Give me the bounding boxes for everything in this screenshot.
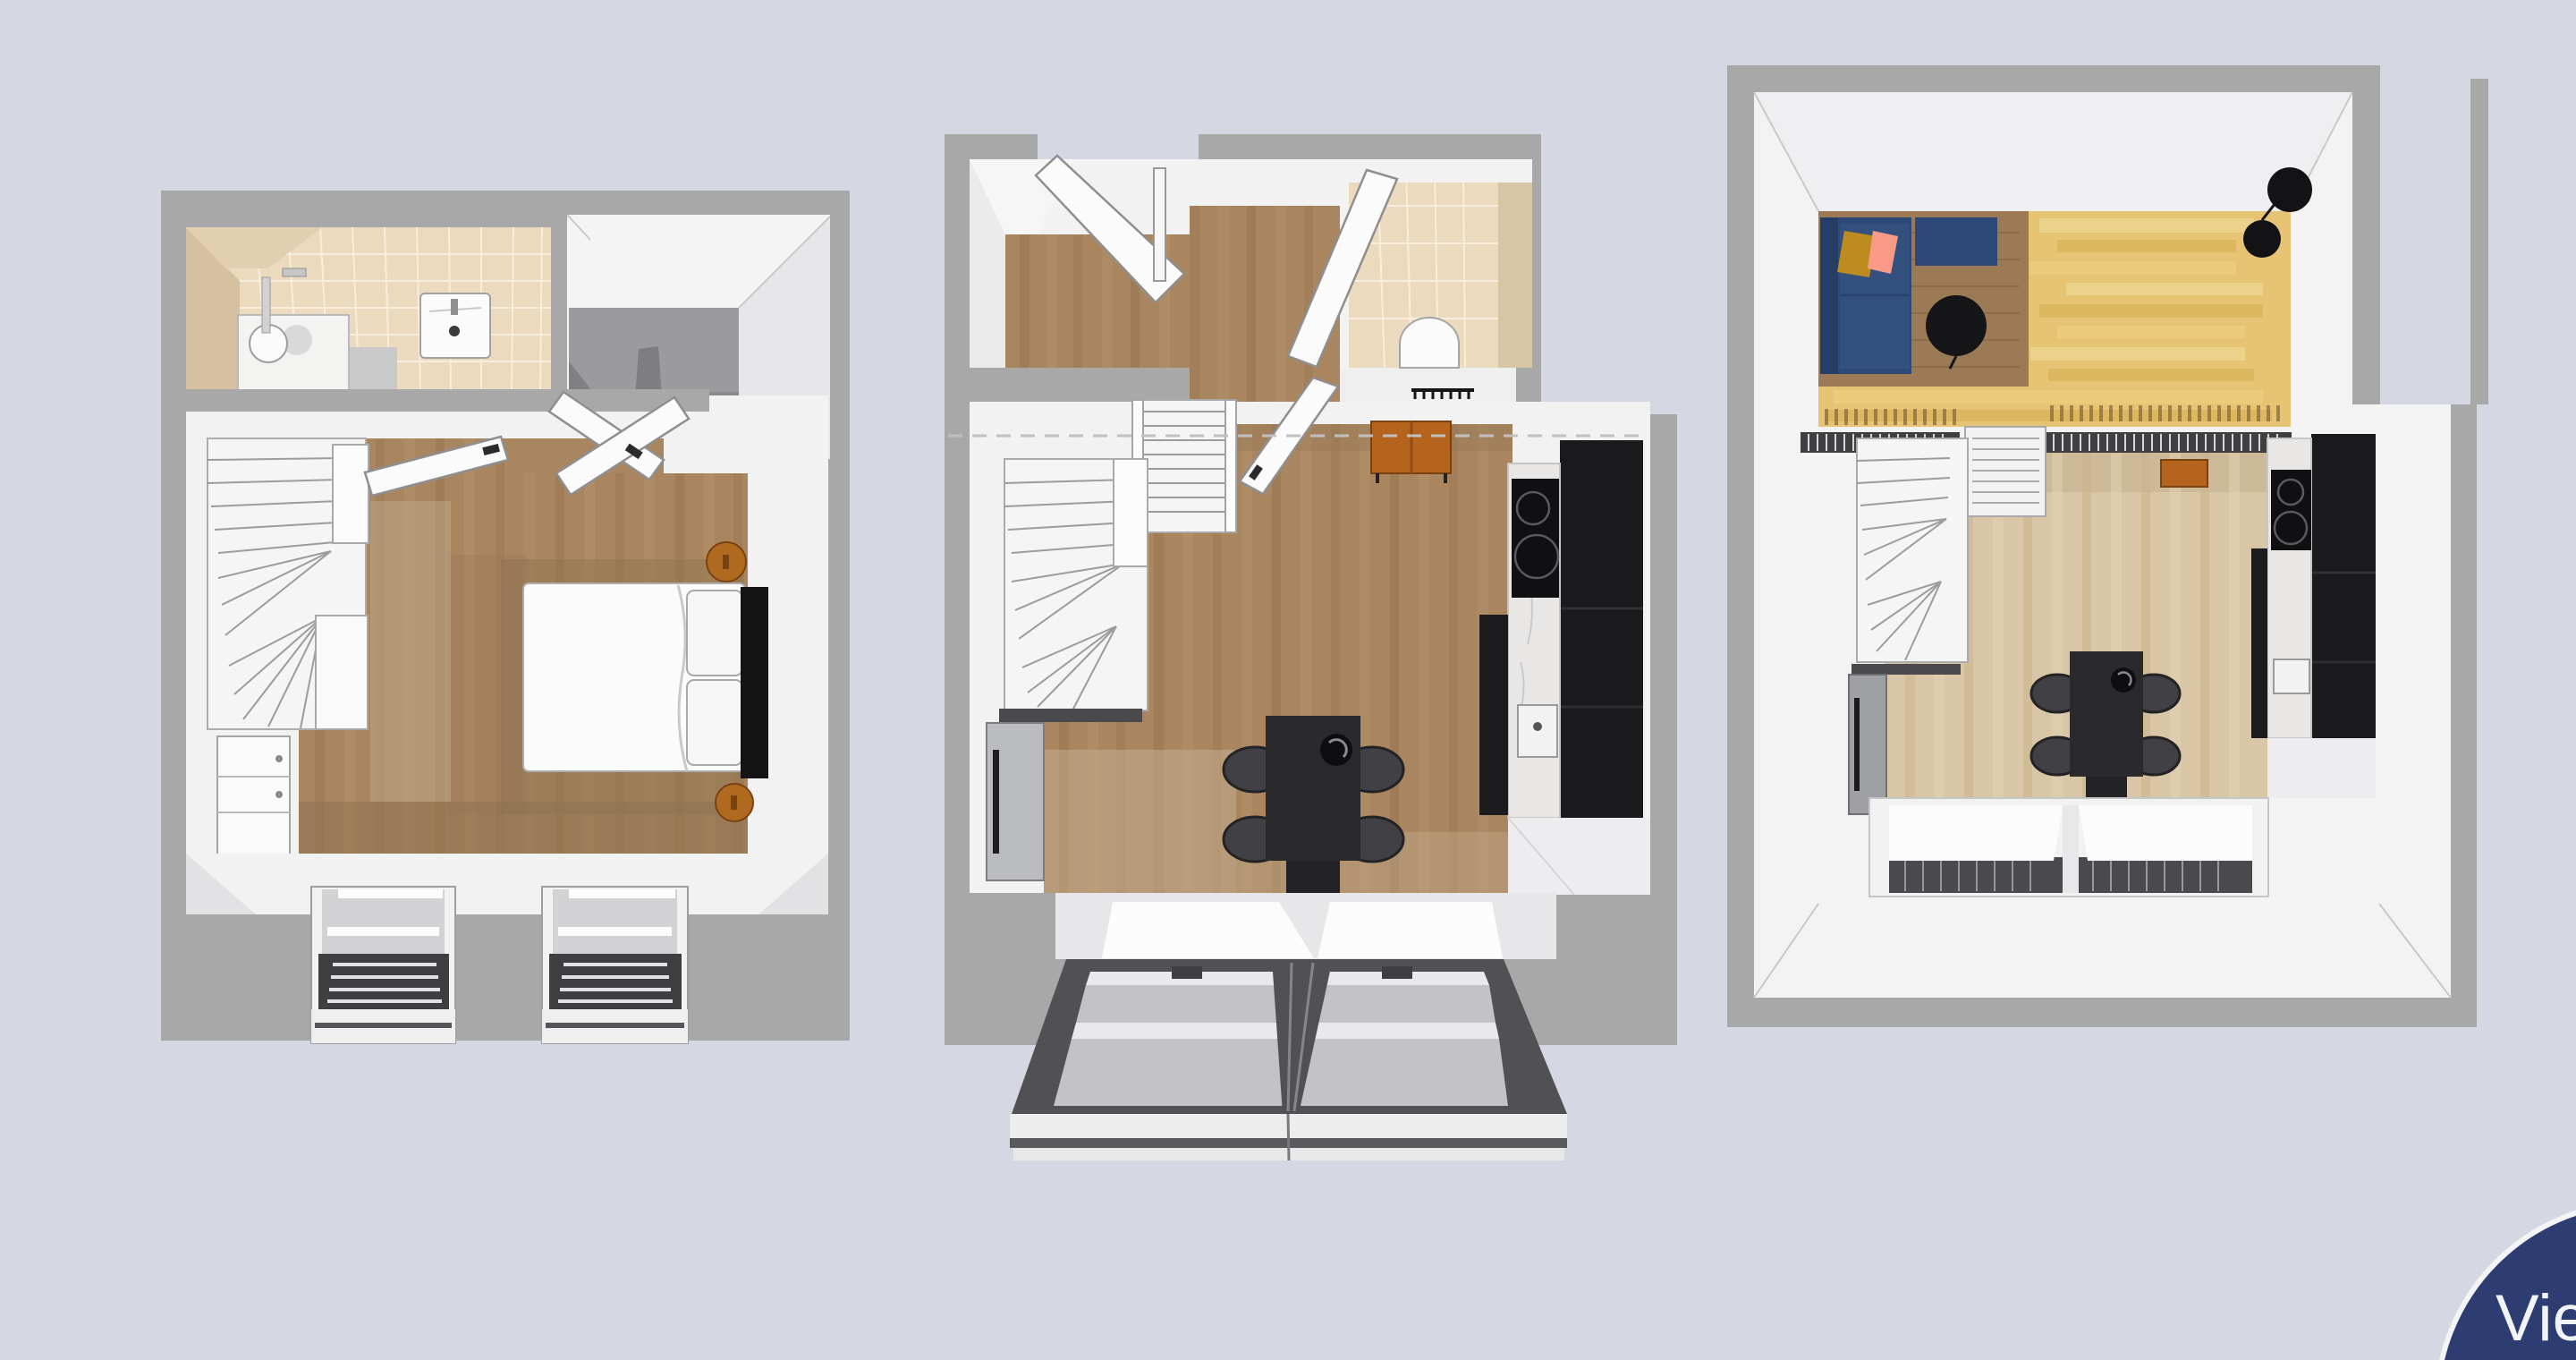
svg-text:View in 3D: View in 3D xyxy=(2495,1282,2576,1355)
